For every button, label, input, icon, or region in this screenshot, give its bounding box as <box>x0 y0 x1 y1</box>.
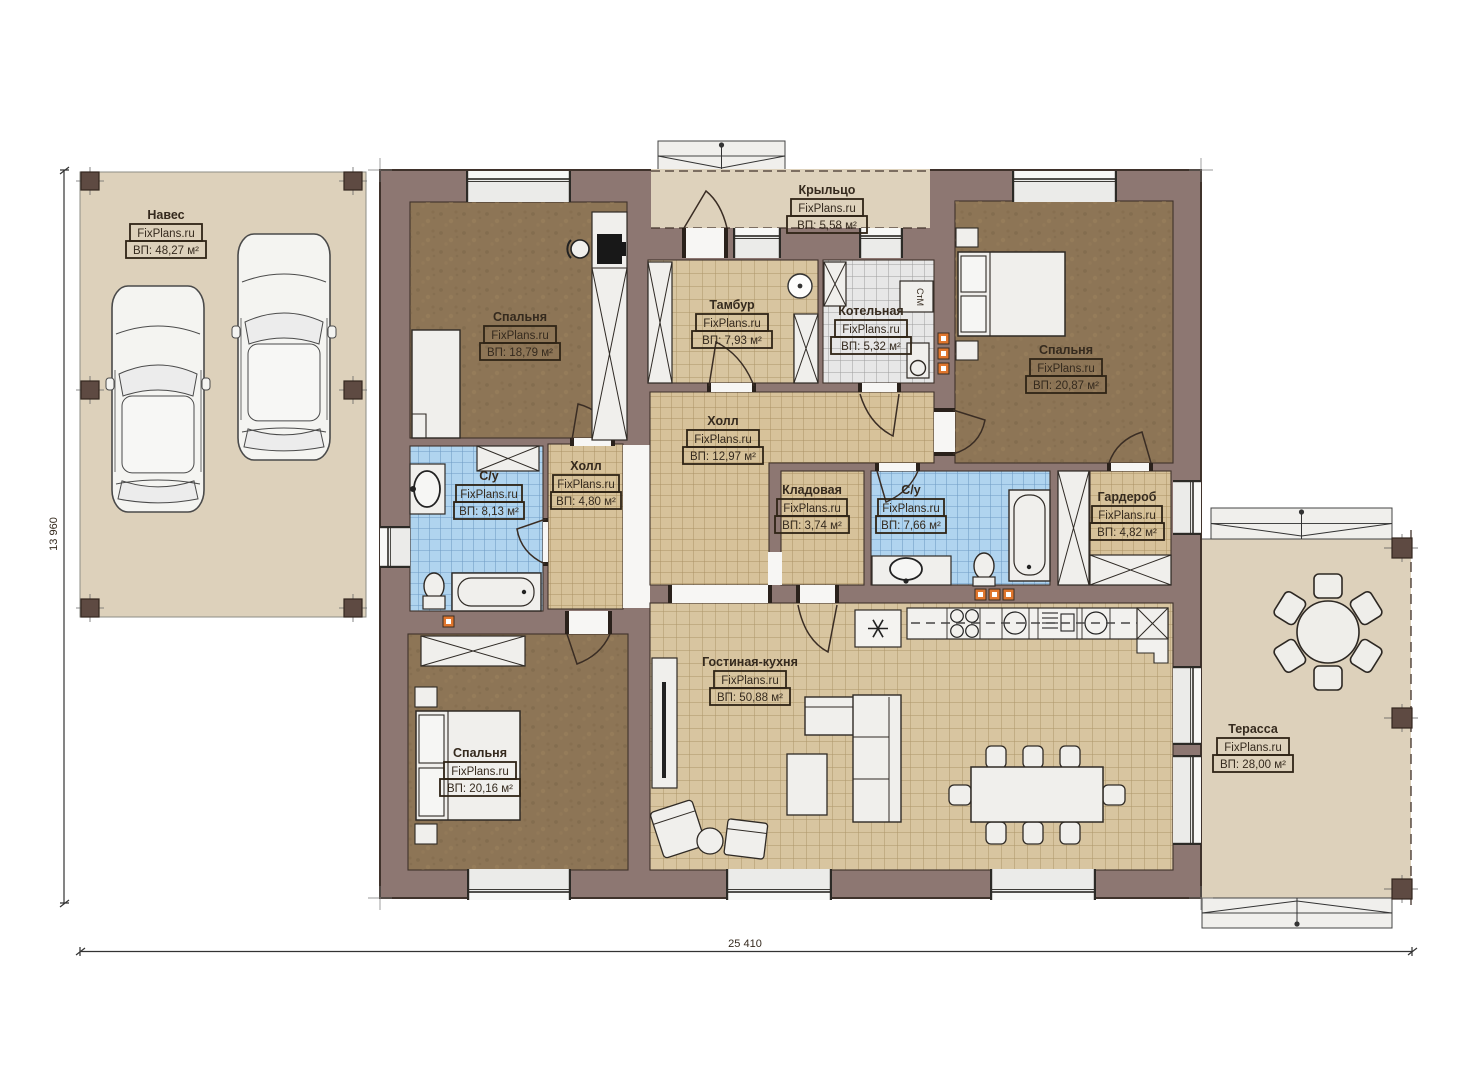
svg-text:ВП: 20,16 м²: ВП: 20,16 м² <box>447 783 513 795</box>
svg-text:Холл: Холл <box>570 459 601 473</box>
svg-text:25 410: 25 410 <box>728 938 762 950</box>
svg-text:Спальня: Спальня <box>1039 343 1093 357</box>
svg-text:FixPlans.ru: FixPlans.ru <box>1098 510 1156 522</box>
svg-text:Тамбур: Тамбур <box>709 298 755 312</box>
svg-text:Спальня: Спальня <box>453 746 507 760</box>
svg-text:FixPlans.ru: FixPlans.ru <box>460 489 518 501</box>
svg-text:Спальня: Спальня <box>493 310 547 324</box>
svg-text:FixPlans.ru: FixPlans.ru <box>703 318 761 330</box>
svg-text:FixPlans.ru: FixPlans.ru <box>842 324 900 336</box>
svg-text:13 960: 13 960 <box>48 517 60 551</box>
svg-text:ВП: 8,13 м²: ВП: 8,13 м² <box>459 506 519 518</box>
svg-text:ВП: 7,93 м²: ВП: 7,93 м² <box>702 335 762 347</box>
svg-text:Гардероб: Гардероб <box>1097 490 1156 504</box>
svg-text:FixPlans.ru: FixPlans.ru <box>451 766 509 778</box>
svg-text:FixPlans.ru: FixPlans.ru <box>137 228 195 240</box>
svg-text:Крыльцо: Крыльцо <box>799 183 856 197</box>
svg-text:Холл: Холл <box>707 414 738 428</box>
svg-text:ВП: 50,88 м²: ВП: 50,88 м² <box>717 692 783 704</box>
svg-text:FixPlans.ru: FixPlans.ru <box>1224 742 1282 754</box>
svg-text:FixPlans.ru: FixPlans.ru <box>882 503 940 515</box>
svg-text:С/у: С/у <box>901 483 921 497</box>
svg-text:ВП: 18,79 м²: ВП: 18,79 м² <box>487 347 553 359</box>
svg-text:ВП: 20,87 м²: ВП: 20,87 м² <box>1033 380 1099 392</box>
svg-text:FixPlans.ru: FixPlans.ru <box>1037 363 1095 375</box>
svg-text:Котельная: Котельная <box>838 304 903 318</box>
svg-text:Навес: Навес <box>147 208 184 222</box>
svg-text:FixPlans.ru: FixPlans.ru <box>798 203 856 215</box>
svg-text:FixPlans.ru: FixPlans.ru <box>694 434 752 446</box>
svg-text:FixPlans.ru: FixPlans.ru <box>557 479 615 491</box>
svg-text:ВП: 12,97 м²: ВП: 12,97 м² <box>690 451 756 463</box>
svg-text:ВП: 5,58 м²: ВП: 5,58 м² <box>797 220 857 232</box>
svg-text:ВП: 48,27 м²: ВП: 48,27 м² <box>133 245 199 257</box>
svg-text:ВП: 28,00 м²: ВП: 28,00 м² <box>1220 759 1286 771</box>
svg-text:FixPlans.ru: FixPlans.ru <box>783 503 841 515</box>
svg-text:FixPlans.ru: FixPlans.ru <box>721 675 779 687</box>
svg-text:ВП: 4,80 м²: ВП: 4,80 м² <box>556 496 616 508</box>
svg-text:Кладовая: Кладовая <box>782 483 842 497</box>
svg-text:Терасса: Терасса <box>1228 722 1279 736</box>
svg-text:ВП: 4,82 м²: ВП: 4,82 м² <box>1097 527 1157 539</box>
svg-text:FixPlans.ru: FixPlans.ru <box>491 330 549 342</box>
svg-text:Гостиная-кухня: Гостиная-кухня <box>702 655 798 669</box>
svg-text:ВП: 3,74 м²: ВП: 3,74 м² <box>782 520 842 532</box>
svg-text:ВП: 7,66 м²: ВП: 7,66 м² <box>881 520 941 532</box>
svg-text:СтМ: СтМ <box>915 288 925 306</box>
svg-text:С/у: С/у <box>479 469 499 483</box>
svg-text:ВП: 5,32 м²: ВП: 5,32 м² <box>841 341 901 353</box>
